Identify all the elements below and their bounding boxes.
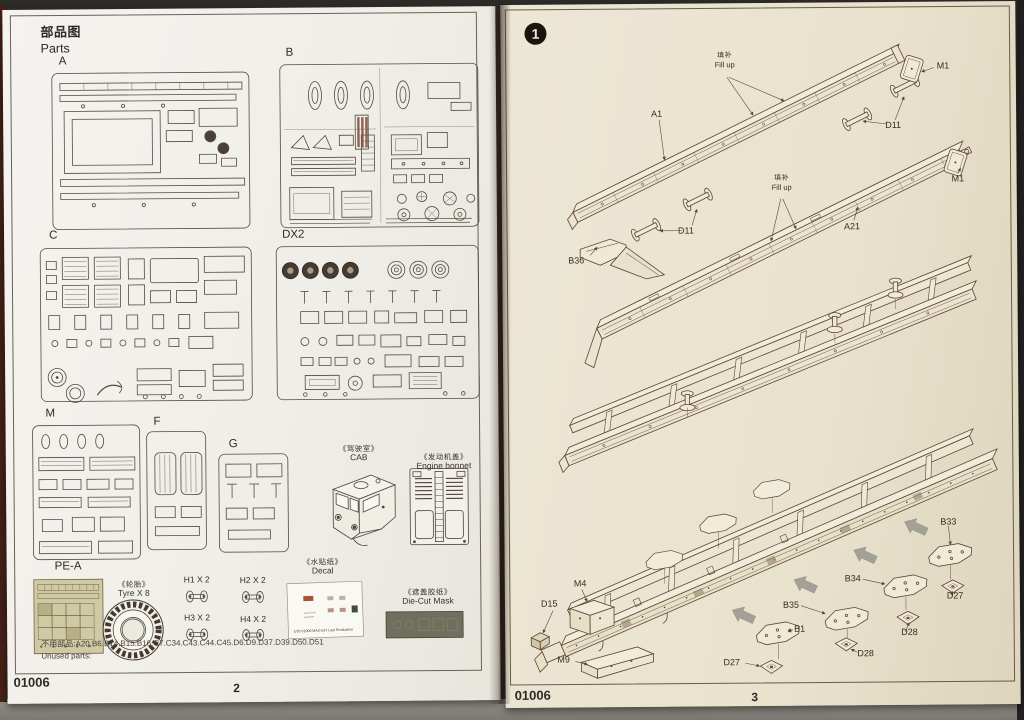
- callout-fill-up-lower: 填补 Fill up: [761, 173, 803, 192]
- callout-d15: D15: [541, 599, 558, 609]
- part-d11-lower-pair: [630, 187, 715, 242]
- part-d27-front: [760, 660, 782, 673]
- cab-art: [333, 475, 396, 546]
- part-d28-front: [835, 638, 857, 651]
- sprue-label-a: A: [59, 55, 67, 68]
- sprue-label-f: F: [153, 416, 160, 429]
- callout-b33: B33: [940, 516, 956, 526]
- kit-number-right: 01006: [515, 689, 551, 704]
- fill-up-lower-cn: 填补: [761, 173, 803, 183]
- sprue-label-m: M: [45, 408, 55, 421]
- tyre-caption-en: Tyre X 8: [103, 589, 165, 599]
- h1-part-icon: [186, 591, 207, 602]
- sprue-g-art: [219, 454, 289, 553]
- part-d28-rear: [897, 611, 919, 624]
- kit-number: 01006: [14, 676, 50, 691]
- left-page-parts: 1/35 01006 MAZ-537 Last Production: [2, 6, 500, 704]
- callout-b35: B35: [783, 600, 799, 610]
- mask-sheet-art: [386, 611, 463, 638]
- mask-caption-en: Die-Cut Mask: [397, 597, 459, 607]
- sprue-m-art: [33, 425, 141, 560]
- page-title-cn: 部品图: [40, 25, 81, 40]
- callout-d28-rear: D28: [901, 627, 918, 637]
- decal-caption-en: Decal: [292, 566, 354, 576]
- callout-d28-front: D28: [857, 648, 874, 658]
- tyre-caption: 《轮胎》 Tyre X 8: [103, 581, 165, 599]
- sprue-a-art: [52, 72, 250, 230]
- step-number-circle: 1: [524, 23, 546, 45]
- callout-d11-upper: D11: [885, 120, 901, 130]
- cab-caption: 《驾驶室》 CAB: [328, 445, 390, 463]
- page-number-left: 2: [226, 682, 248, 695]
- step-number: 1: [532, 26, 540, 42]
- fill-up-upper-cn: 填补: [704, 50, 746, 60]
- decal-caption: 《水贴纸》 Decal: [292, 558, 354, 576]
- sprue-f-art: [147, 431, 207, 549]
- cab-caption-en: CAB: [328, 453, 390, 463]
- striped-part: [355, 115, 368, 149]
- page-number-right: 3: [746, 691, 764, 704]
- callout-b34: B34: [845, 573, 861, 583]
- sprue-b-art: [280, 63, 479, 228]
- sprue-label-g: G: [229, 438, 238, 451]
- h2-label: H2 X 2: [226, 576, 280, 586]
- photo-scene: 1/35 01006 MAZ-537 Last Production: [0, 0, 1024, 720]
- callout-d27-front: D27: [723, 657, 740, 667]
- h4-label: H4 X 2: [226, 615, 280, 625]
- callout-m1-upper: M1: [937, 61, 950, 71]
- sprue-dx2-art: [276, 245, 479, 400]
- engine-bonnet-art: [410, 468, 469, 544]
- unused-parts-en: Unused parts:: [41, 652, 91, 661]
- engine-bonnet-caption: 《发动机盖》 Engine bonnet: [409, 453, 479, 471]
- part-b35: [823, 604, 870, 633]
- sprue-label-c: C: [49, 230, 57, 243]
- sprue-c-art: [40, 247, 252, 403]
- part-b34: [882, 571, 929, 600]
- page-gutter: [489, 4, 511, 704]
- right-page-step1: 1 填补 Fill up M1 A1 D11 M1 填补 Fill up A21…: [500, 1, 1021, 708]
- callout-a1: A1: [651, 109, 662, 119]
- callout-d11-lower: D11: [678, 226, 694, 236]
- engine-bonnet-caption-en: Engine bonnet: [409, 461, 479, 471]
- callout-d27-rear: D27: [947, 590, 964, 600]
- callout-m9: M9: [557, 655, 570, 665]
- h2-part-icon: [242, 591, 263, 602]
- part-m9: [581, 647, 653, 679]
- callout-b1: B1: [794, 624, 805, 634]
- callout-b36: B36: [568, 255, 584, 265]
- step1-line-art: [500, 1, 1021, 708]
- callout-m4: M4: [574, 578, 587, 588]
- h3-label: H3 X 2: [170, 613, 224, 623]
- callout-a21: A21: [844, 221, 860, 231]
- h1-label: H1 X 2: [170, 575, 224, 585]
- tyre-art: [103, 600, 163, 660]
- page-title-en: Parts: [41, 42, 70, 56]
- callout-m1-lower: M1: [952, 173, 965, 183]
- fill-up-upper-en: Fill up: [704, 60, 746, 69]
- mask-caption: 《遮盖胶纸》 Die-Cut Mask: [397, 588, 459, 606]
- sprue-label-b: B: [286, 47, 294, 60]
- callout-fill-up-upper: 填补 Fill up: [704, 50, 746, 69]
- fill-up-lower-en: Fill up: [761, 183, 803, 192]
- sprue-label-pe-a: PE-A: [55, 560, 82, 573]
- part-b36: [580, 239, 664, 280]
- frame-assembly-mid: [546, 256, 989, 473]
- decal-sheet-art: 1/35 01006 MAZ-537 Last Production: [287, 581, 364, 639]
- sprue-label-dx2: DX2: [282, 229, 304, 242]
